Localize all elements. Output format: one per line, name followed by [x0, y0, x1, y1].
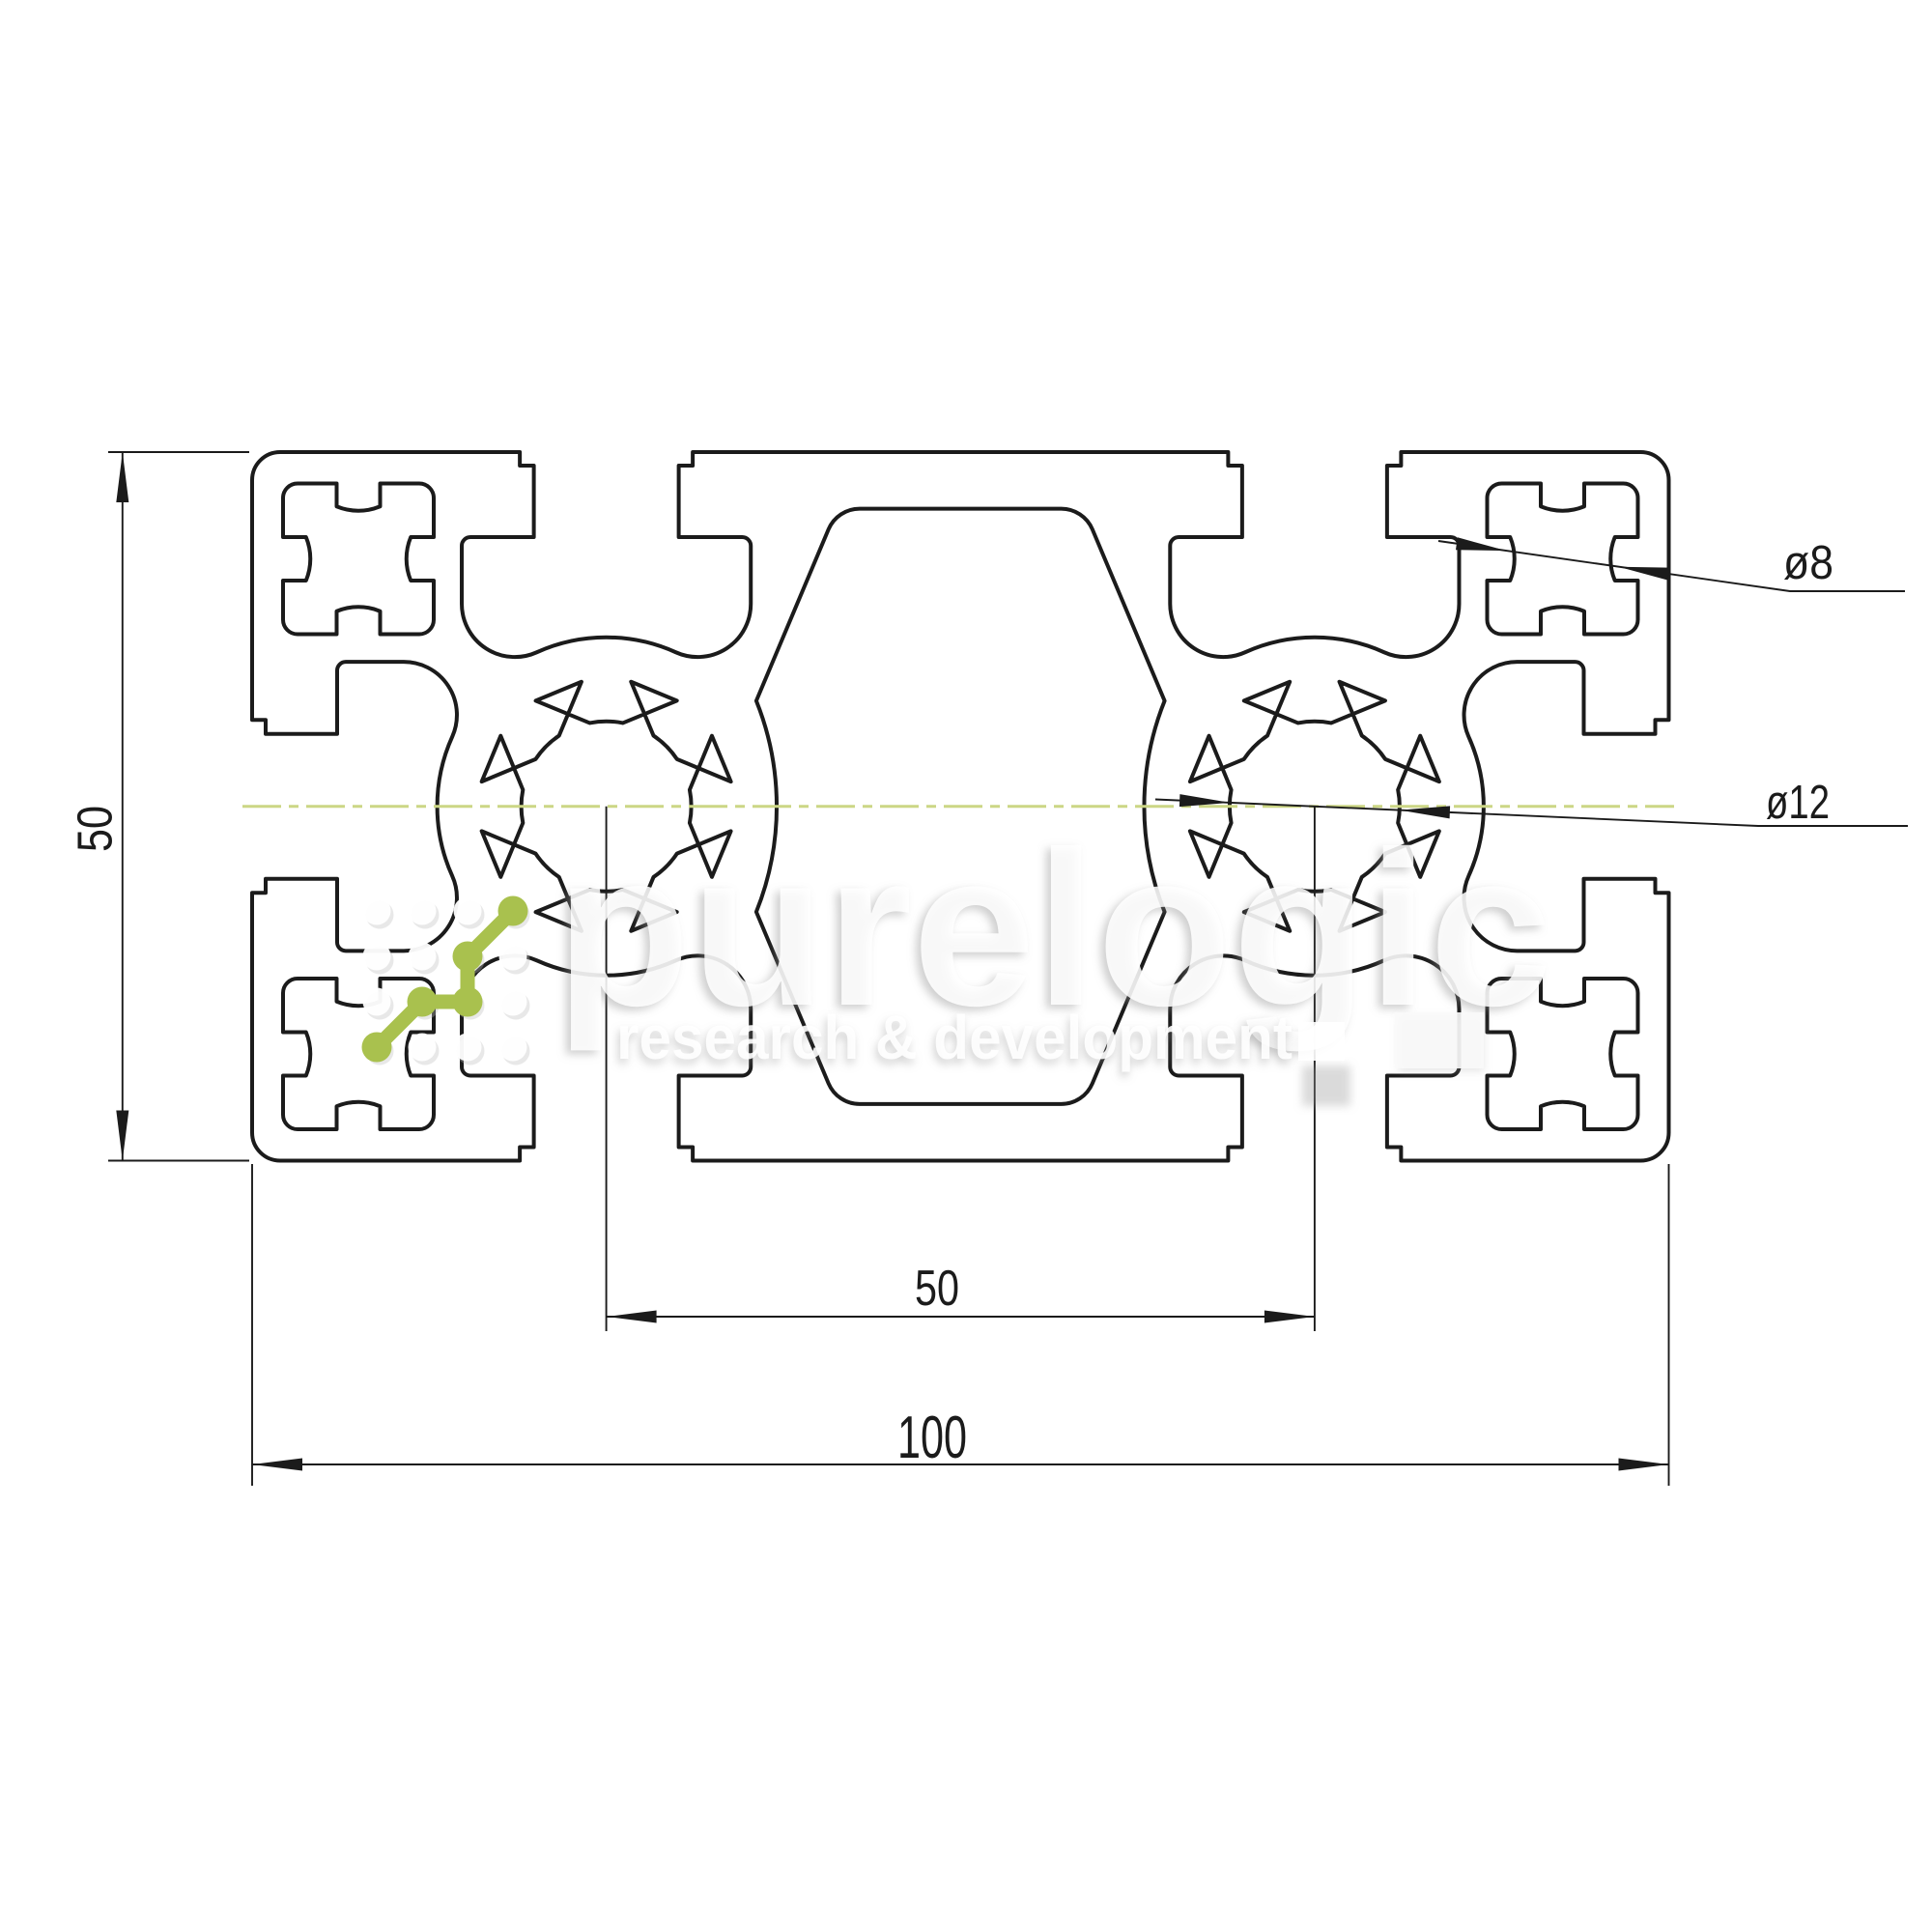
svg-text:ø8: ø8 [1783, 537, 1833, 589]
svg-text:50: 50 [915, 1261, 959, 1317]
svg-text:50: 50 [68, 806, 123, 852]
svg-text:research & development: research & development [616, 1003, 1293, 1072]
svg-text:100: 100 [897, 1405, 967, 1471]
svg-text:ø12: ø12 [1766, 777, 1830, 829]
